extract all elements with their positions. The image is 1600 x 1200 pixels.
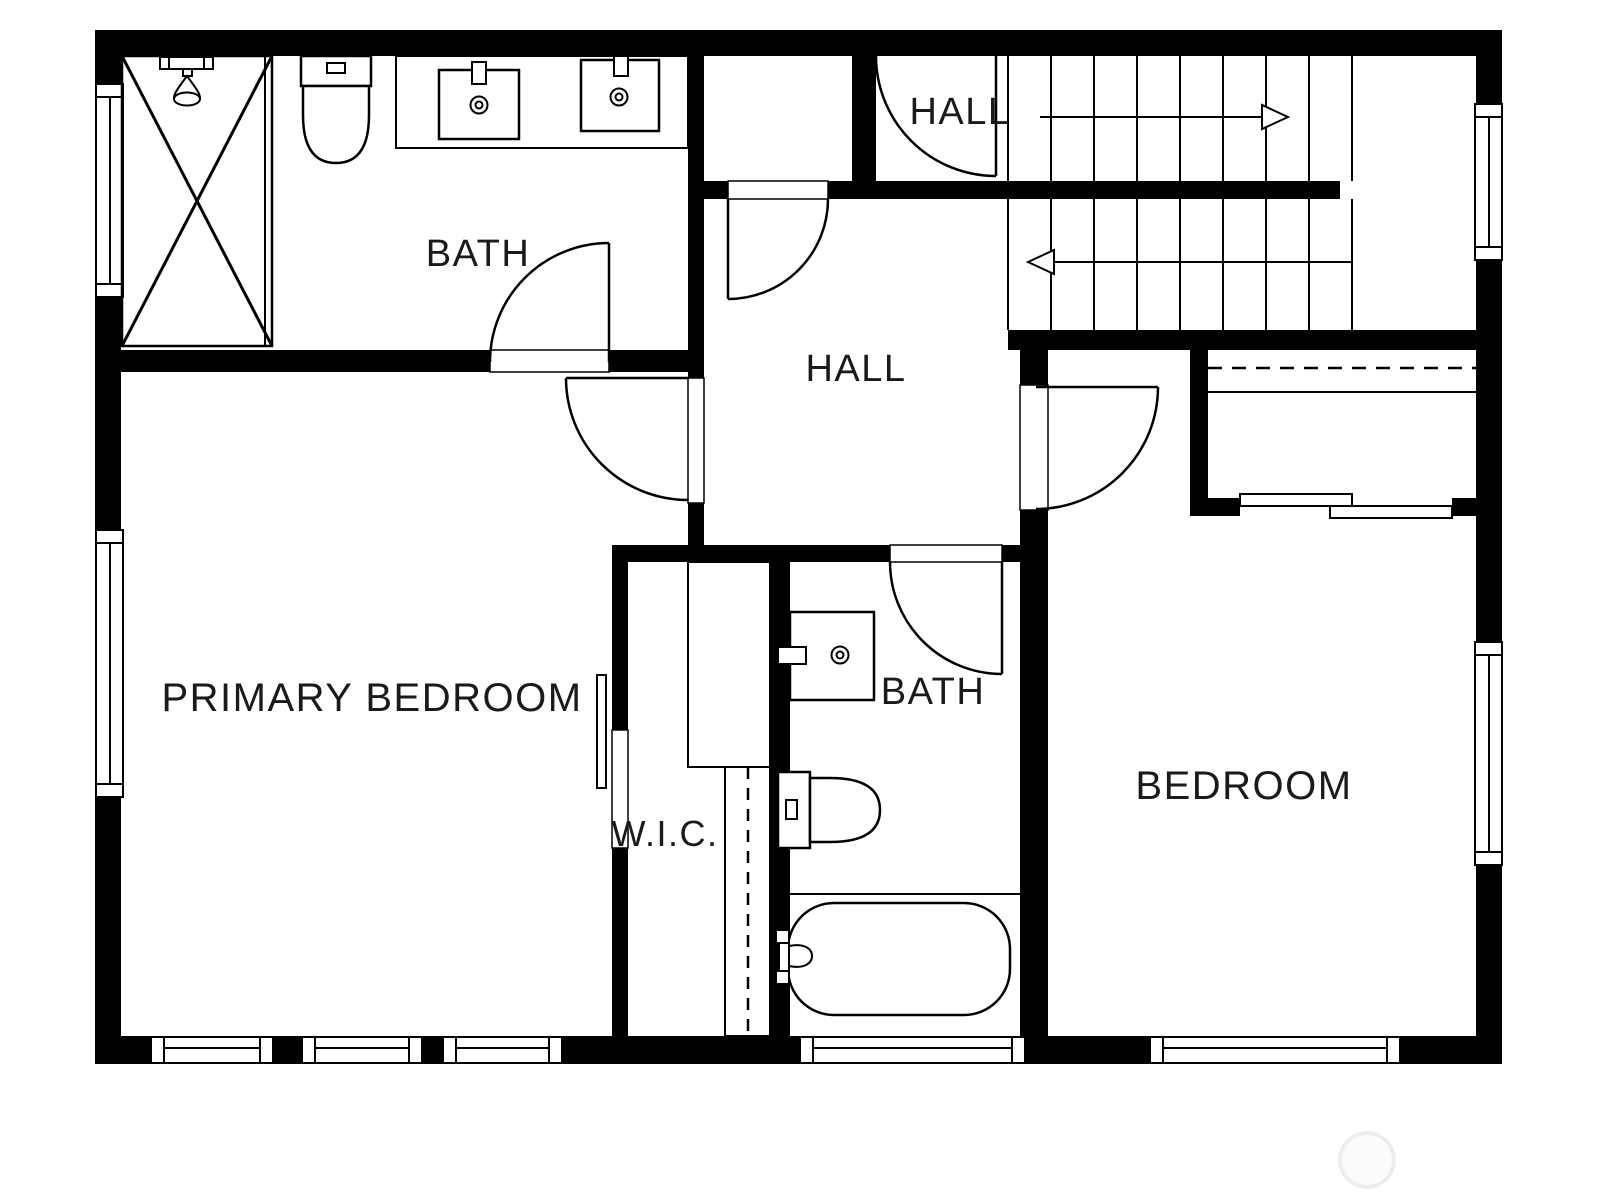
bathtub-icon (776, 903, 1010, 1015)
wall-bath-bottom (121, 350, 704, 372)
window-primary-bedroom-bottom-1 (151, 1037, 273, 1063)
window-bedroom-bottom (1150, 1037, 1400, 1063)
room-label-hall-upper: HALL (909, 91, 1010, 133)
room-label-primary-bedroom: PRIMARY BEDROOM (161, 676, 582, 720)
windows (96, 84, 1502, 1063)
window-primary-bedroom-left (96, 530, 123, 797)
wall-stairs-bottom (1008, 330, 1502, 350)
double-sink-vanity-icon (396, 56, 688, 148)
threshold-bath-primary-door (490, 350, 609, 372)
stairs-up-arrowhead-icon (1262, 105, 1288, 129)
watermark-logo (1340, 1133, 1394, 1187)
threshold-bath-hall-door (890, 545, 1002, 562)
window-primary-bedroom-bottom-3 (443, 1037, 562, 1063)
window-bedroom-right (1475, 642, 1502, 865)
doors (490, 56, 1158, 788)
sink-vanity-icon (778, 612, 874, 700)
wic-shelf-upper (688, 562, 770, 767)
toilet-icon (778, 772, 880, 848)
bath-primary-fixtures (122, 56, 688, 346)
bedroom-closet (1208, 368, 1476, 518)
toilet-icon (301, 56, 371, 163)
closet-sliding-door-panel-1 (1240, 494, 1352, 506)
tub-spout-icon (789, 945, 812, 967)
door-bath-hall (890, 562, 1002, 674)
shower-head-icon (160, 57, 213, 106)
room-label-bath-hall: BATH (881, 671, 986, 713)
room-labels: BATH HALL HALL PRIMARY BEDROOM W.I.C. BA… (161, 91, 1352, 854)
threshold-bedroom-door (1020, 385, 1048, 510)
door-primary-bedroom (566, 378, 688, 500)
wall-closet-front-stub-right (1452, 498, 1476, 516)
threshold-primary-bedroom-door (688, 378, 704, 503)
window-bath-left (96, 84, 123, 297)
wall-closet-left (1190, 350, 1208, 516)
window-bath-hall-bottom (800, 1037, 1025, 1063)
closet-sliding-door-panel-2 (1330, 506, 1452, 518)
room-label-hall-main: HALL (805, 348, 906, 390)
wic-interior (688, 562, 770, 1036)
room-label-wic: W.I.C. (612, 813, 719, 854)
floor-plan-page: BATH HALL HALL PRIMARY BEDROOM W.I.C. BA… (0, 0, 1600, 1200)
stairs-down-arrowhead-icon (1028, 250, 1054, 274)
door-bedroom (1036, 387, 1158, 509)
stairs-upper-run (1008, 56, 1352, 181)
wic-sliding-door-icon (597, 675, 606, 788)
door-alcove (728, 199, 828, 299)
window-stair-landing-right (1475, 104, 1502, 260)
floor-plan-drawing: BATH HALL HALL PRIMARY BEDROOM W.I.C. BA… (0, 0, 1600, 1200)
room-label-bedroom: BEDROOM (1135, 764, 1352, 808)
threshold-alcove-door (728, 181, 828, 199)
wall-alcove-right (852, 56, 876, 181)
room-label-bath-primary: BATH (426, 233, 531, 275)
wall-exterior-top (95, 30, 1502, 56)
wall-closet-front-stub-left (1208, 498, 1240, 516)
stairs-lower-run (1008, 199, 1352, 330)
window-primary-bedroom-bottom-2 (302, 1037, 422, 1063)
